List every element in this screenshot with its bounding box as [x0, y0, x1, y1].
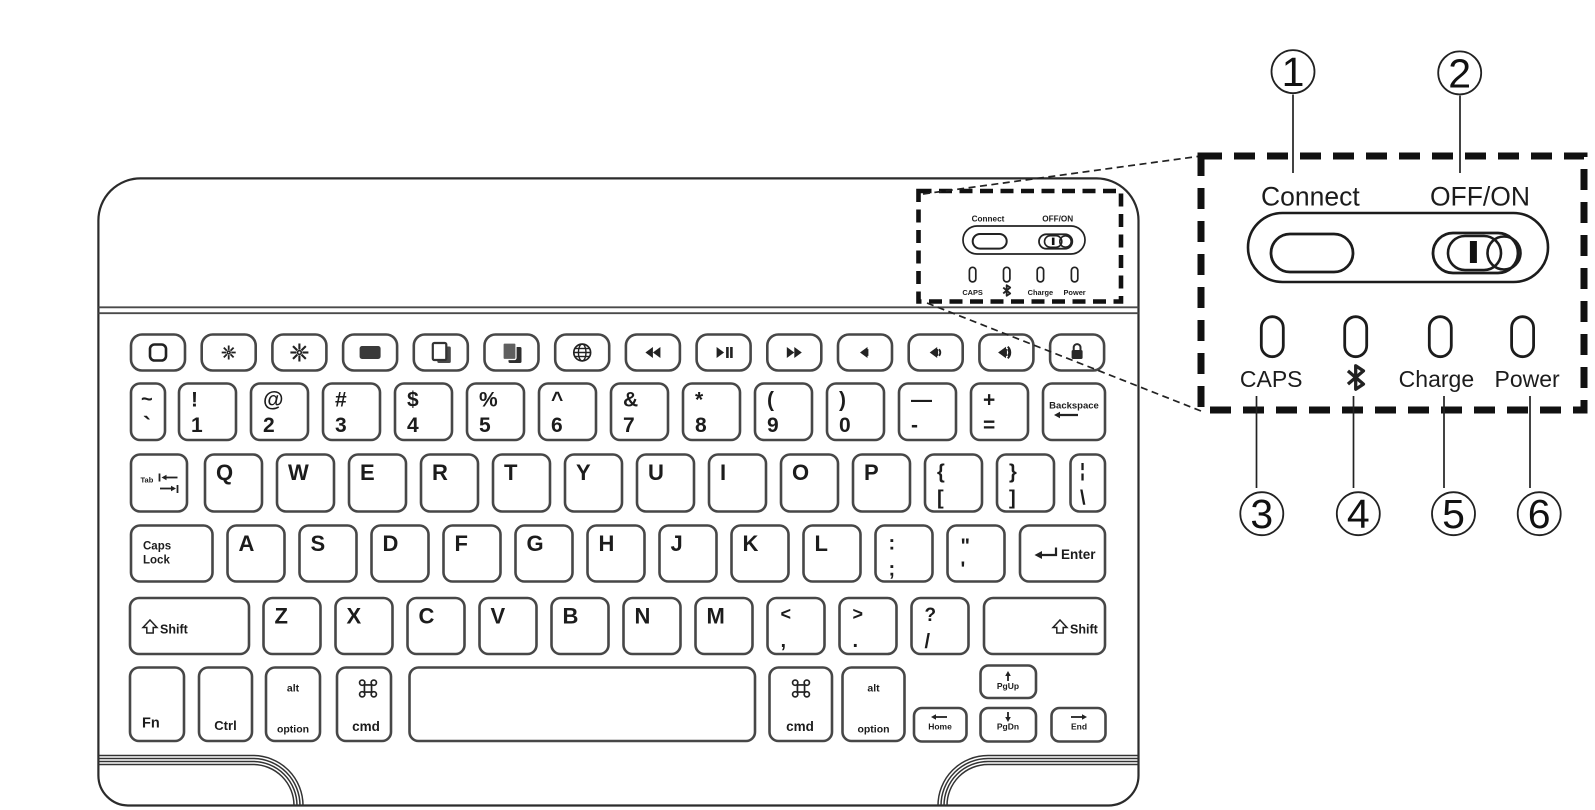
- svg-text:+: +: [983, 389, 995, 412]
- svg-text:PgDn: PgDn: [997, 722, 1019, 732]
- svg-text:Enter: Enter: [1061, 547, 1096, 562]
- svg-text:Ctrl: Ctrl: [214, 718, 236, 733]
- svg-text:T: T: [504, 460, 518, 485]
- svg-text:;: ;: [889, 559, 896, 581]
- svg-text:Tab: Tab: [141, 476, 154, 485]
- svg-text:.: .: [853, 630, 859, 652]
- svg-text:K: K: [743, 531, 759, 556]
- svg-text:6: 6: [551, 414, 563, 437]
- svg-text:): ): [839, 389, 846, 412]
- svg-text:option: option: [857, 724, 889, 736]
- svg-text:]: ]: [1009, 488, 1016, 510]
- svg-text:2: 2: [1448, 50, 1471, 96]
- svg-text:5: 5: [1442, 491, 1465, 537]
- svg-text:0: 0: [839, 414, 851, 437]
- svg-text:Q: Q: [216, 460, 233, 485]
- svg-text:>: >: [853, 604, 864, 624]
- svg-text:<: <: [781, 604, 792, 624]
- svg-text:4: 4: [407, 414, 419, 437]
- svg-text:~: ~: [141, 389, 153, 411]
- svg-text:alt: alt: [867, 683, 880, 695]
- svg-text:J: J: [671, 531, 683, 556]
- svg-text:CAPS: CAPS: [1240, 366, 1303, 392]
- svg-text:Shift: Shift: [160, 623, 189, 637]
- svg-text:Backspace: Backspace: [1049, 401, 1099, 412]
- svg-text:CAPS: CAPS: [962, 288, 983, 297]
- svg-text:Z: Z: [275, 604, 288, 629]
- svg-text:P: P: [864, 460, 879, 485]
- svg-text:Shift: Shift: [1070, 623, 1099, 637]
- svg-text:Connect: Connect: [972, 215, 1005, 224]
- svg-text:Charge: Charge: [1028, 288, 1053, 297]
- svg-text:L: L: [815, 531, 828, 556]
- svg-text:H: H: [599, 531, 615, 556]
- svg-text:End: End: [1071, 722, 1087, 732]
- svg-text:option: option: [277, 724, 309, 736]
- svg-text:Lock: Lock: [143, 555, 170, 567]
- svg-text:#: #: [335, 389, 347, 412]
- svg-text:Y: Y: [576, 460, 591, 485]
- svg-text:OFF/ON: OFF/ON: [1042, 215, 1073, 224]
- svg-text:O: O: [792, 460, 809, 485]
- svg-text:1: 1: [1282, 49, 1305, 95]
- svg-text:cmd: cmd: [786, 719, 814, 734]
- svg-text:-: -: [911, 414, 918, 437]
- svg-text:1: 1: [191, 414, 203, 437]
- svg-text:`: `: [143, 413, 151, 440]
- svg-text:OFF/ON: OFF/ON: [1430, 182, 1530, 212]
- svg-text:M: M: [707, 604, 725, 629]
- svg-text:—: —: [911, 389, 932, 412]
- svg-text:?: ?: [925, 605, 937, 626]
- svg-text:*: *: [695, 389, 704, 412]
- svg-text:W: W: [288, 460, 309, 485]
- svg-text::: :: [889, 533, 896, 555]
- svg-text:I: I: [720, 460, 726, 485]
- svg-text:": ": [961, 536, 970, 558]
- svg-text:Power: Power: [1494, 366, 1560, 392]
- svg-text:,: ,: [781, 630, 787, 652]
- svg-text:/: /: [925, 631, 931, 653]
- svg-text:(: (: [767, 389, 774, 412]
- svg-text:F: F: [455, 531, 468, 556]
- svg-text:8: 8: [695, 414, 707, 437]
- svg-text:%: %: [479, 389, 498, 412]
- svg-text:X: X: [347, 604, 362, 629]
- svg-text:N: N: [635, 604, 651, 629]
- svg-text:2: 2: [263, 414, 275, 437]
- svg-text:E: E: [360, 460, 375, 485]
- svg-text:A: A: [239, 531, 255, 556]
- svg-text:[: [: [937, 488, 944, 510]
- svg-text:4: 4: [1347, 491, 1370, 537]
- svg-text:9: 9: [767, 414, 779, 437]
- svg-text:5: 5: [479, 414, 491, 437]
- svg-text:R: R: [432, 460, 448, 485]
- svg-text:D: D: [383, 531, 399, 556]
- svg-text:7: 7: [623, 414, 635, 437]
- svg-text:@: @: [263, 389, 283, 412]
- svg-text:3: 3: [335, 414, 347, 437]
- svg-text:=: =: [983, 414, 995, 437]
- svg-text:cmd: cmd: [352, 719, 380, 734]
- svg-text:}: }: [1009, 462, 1017, 484]
- svg-text:3: 3: [1250, 491, 1273, 537]
- svg-text:$: $: [407, 389, 419, 412]
- svg-text:Power: Power: [1064, 288, 1086, 297]
- svg-text:V: V: [491, 604, 506, 629]
- svg-text:PgUp: PgUp: [997, 681, 1019, 691]
- svg-text:Home: Home: [928, 722, 952, 732]
- svg-text:&: &: [623, 389, 638, 412]
- svg-text:6: 6: [1528, 491, 1551, 537]
- svg-text:alt: alt: [287, 683, 300, 695]
- svg-text:!: !: [191, 389, 198, 412]
- svg-text:B: B: [563, 604, 579, 629]
- svg-text:S: S: [311, 531, 326, 556]
- svg-text:¦: ¦: [1080, 461, 1085, 481]
- svg-text:Charge: Charge: [1399, 366, 1474, 392]
- svg-text:\: \: [1080, 488, 1086, 510]
- svg-text:Fn: Fn: [142, 716, 160, 732]
- svg-text:U: U: [648, 460, 664, 485]
- svg-text:C: C: [419, 604, 435, 629]
- svg-text:Caps: Caps: [143, 541, 171, 553]
- svg-text:G: G: [527, 531, 544, 556]
- svg-text:': ': [961, 559, 966, 581]
- svg-text:^: ^: [551, 389, 563, 412]
- svg-text:{: {: [937, 462, 945, 484]
- svg-text:Connect: Connect: [1261, 182, 1360, 212]
